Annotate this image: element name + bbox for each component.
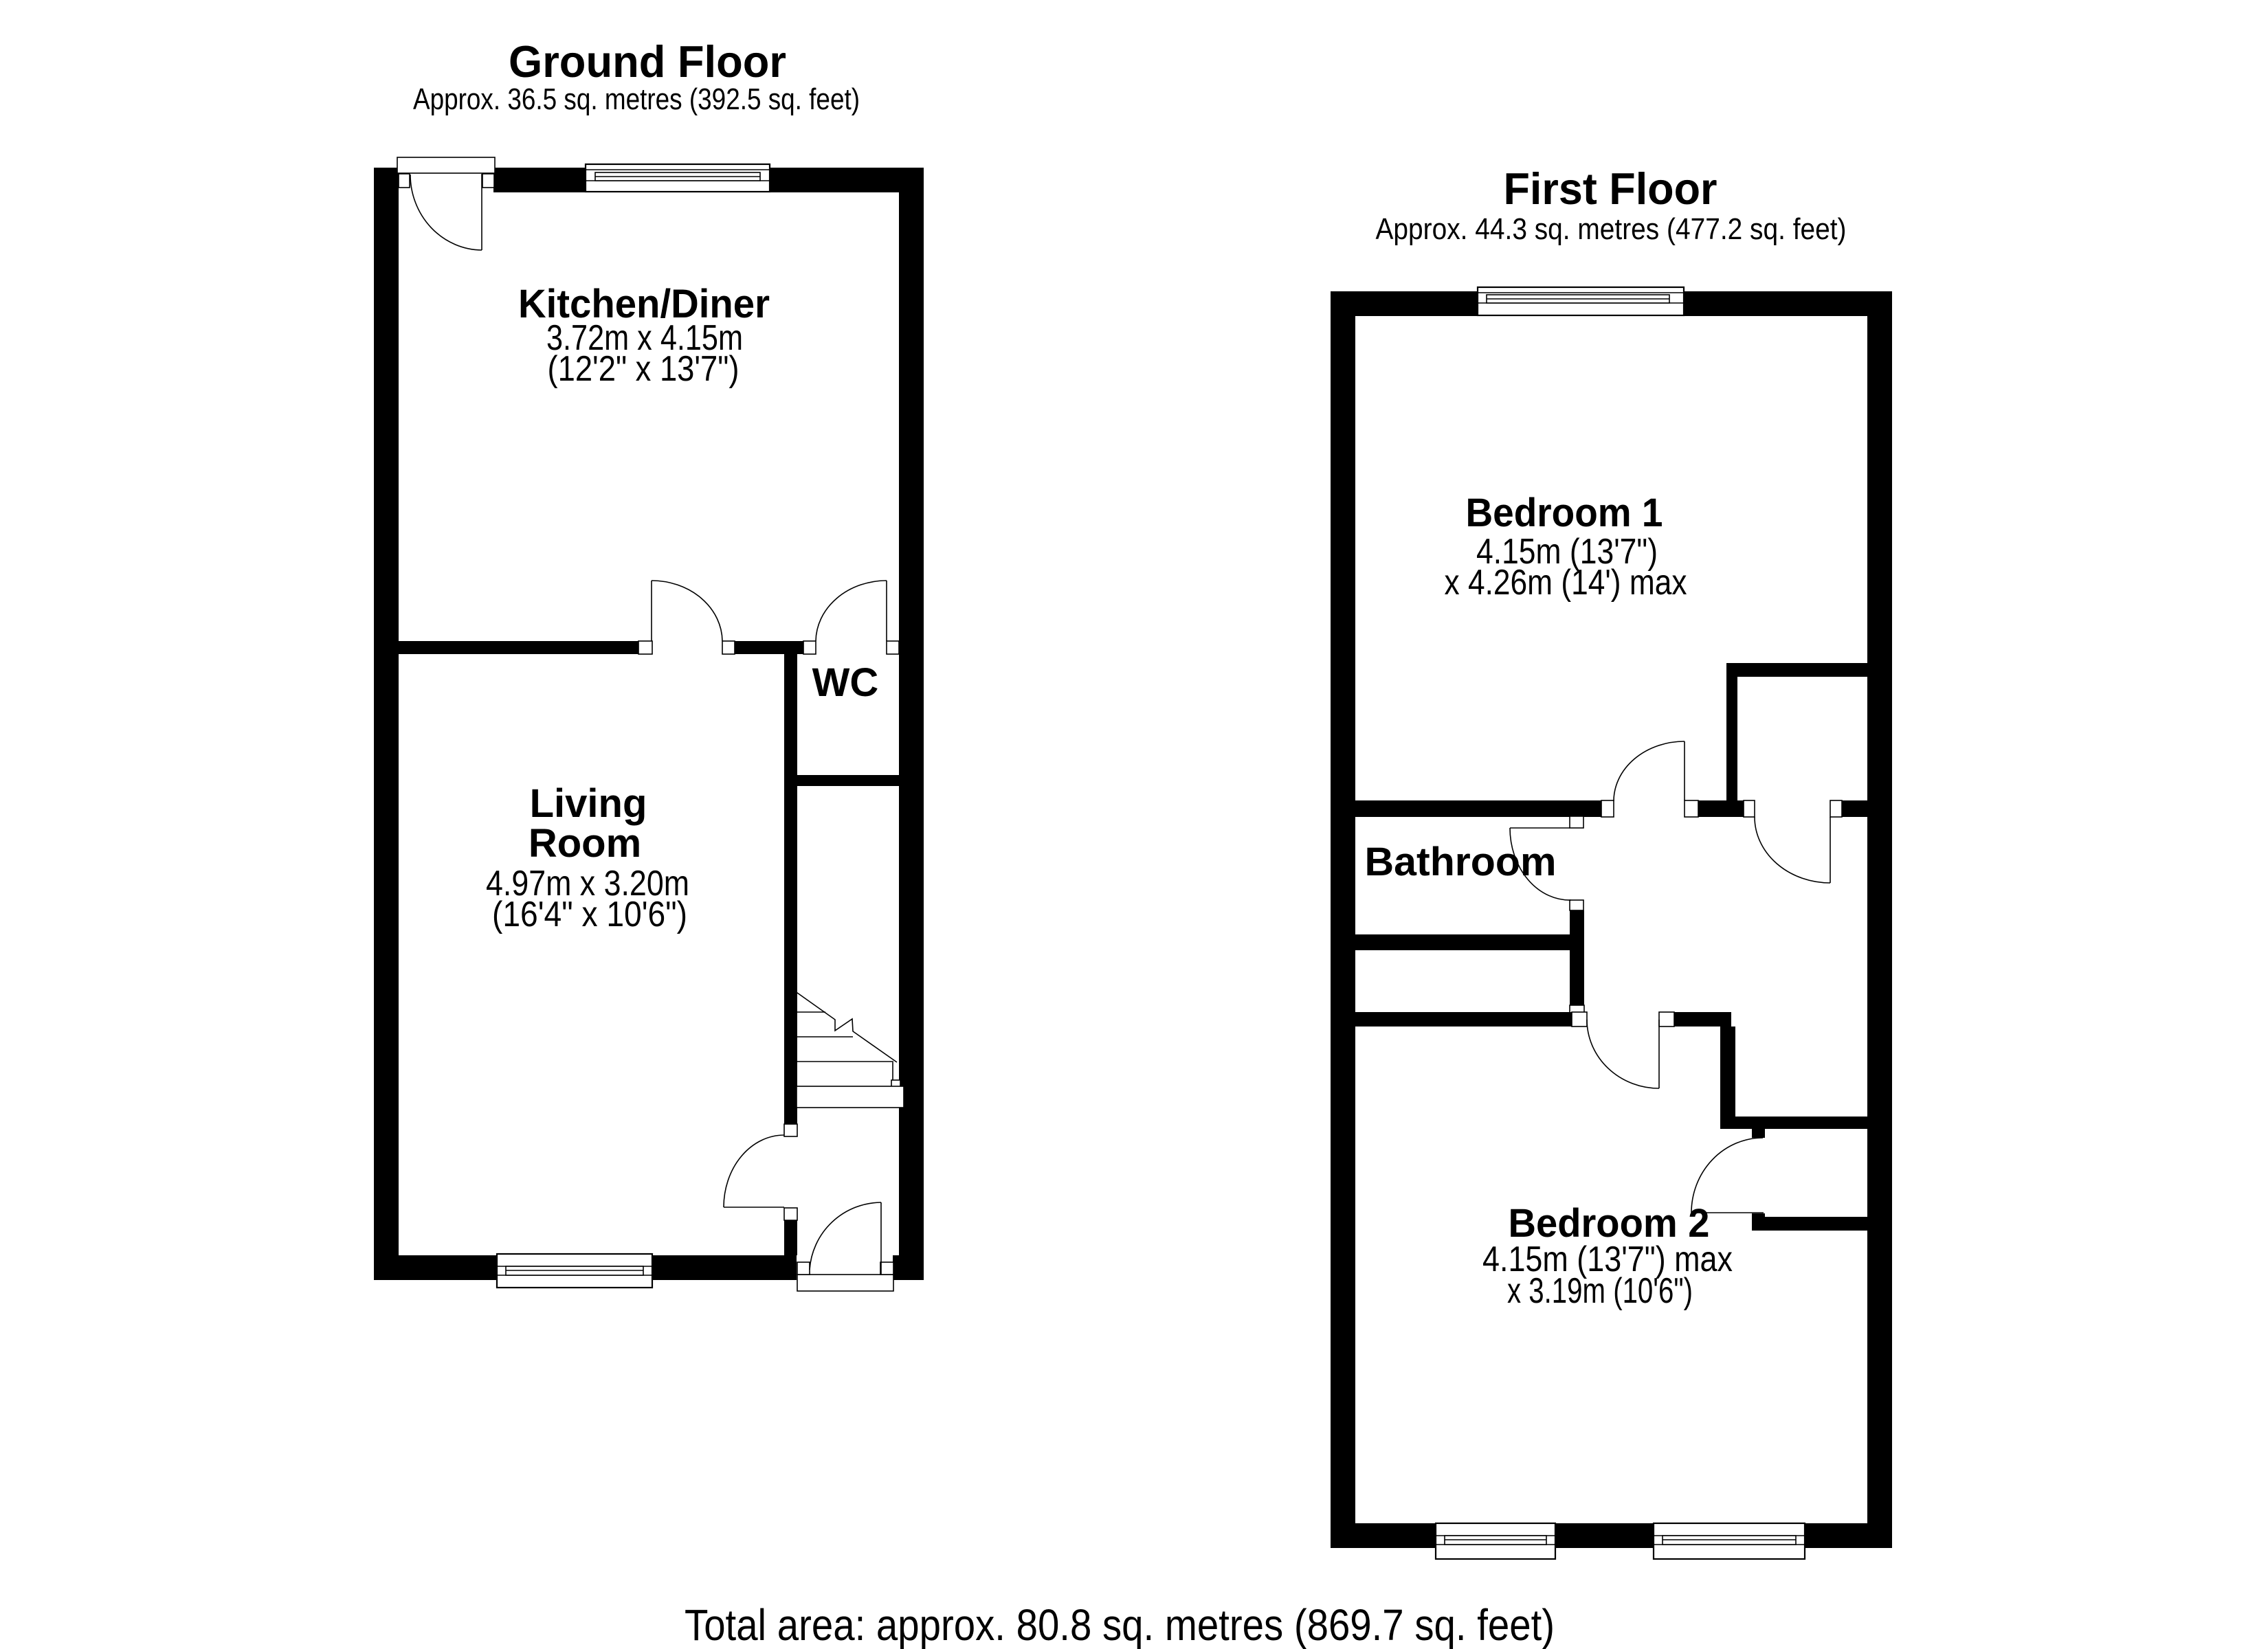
svg-text:Approx. 36.5 sq. metres (392.5: Approx. 36.5 sq. metres (392.5 sq. feet) — [413, 82, 860, 116]
svg-text:(16'4" x 10'6"): (16'4" x 10'6") — [492, 895, 687, 934]
svg-text:Approx. 44.3 sq. metres (477.2: Approx. 44.3 sq. metres (477.2 sq. feet) — [1376, 212, 1847, 246]
svg-text:Ground Floor: Ground Floor — [509, 36, 786, 87]
svg-text:Bedroom 1: Bedroom 1 — [1466, 491, 1663, 535]
svg-text:x 4.26m (14') max: x 4.26m (14') max — [1445, 563, 1687, 603]
svg-text:Room: Room — [529, 821, 641, 866]
svg-text:First Floor: First Floor — [1504, 164, 1717, 214]
svg-text:x 3.19m (10'6"): x 3.19m (10'6") — [1507, 1271, 1693, 1311]
svg-text:WC: WC — [812, 660, 879, 705]
svg-text:Bathroom: Bathroom — [1365, 840, 1557, 884]
svg-text:Living: Living — [530, 781, 647, 826]
svg-text:Total area: approx. 80.8 sq. m: Total area: approx. 80.8 sq. metres (869… — [685, 1600, 1555, 1649]
svg-text:(12'2" x 13'7"): (12'2" x 13'7") — [548, 349, 740, 389]
